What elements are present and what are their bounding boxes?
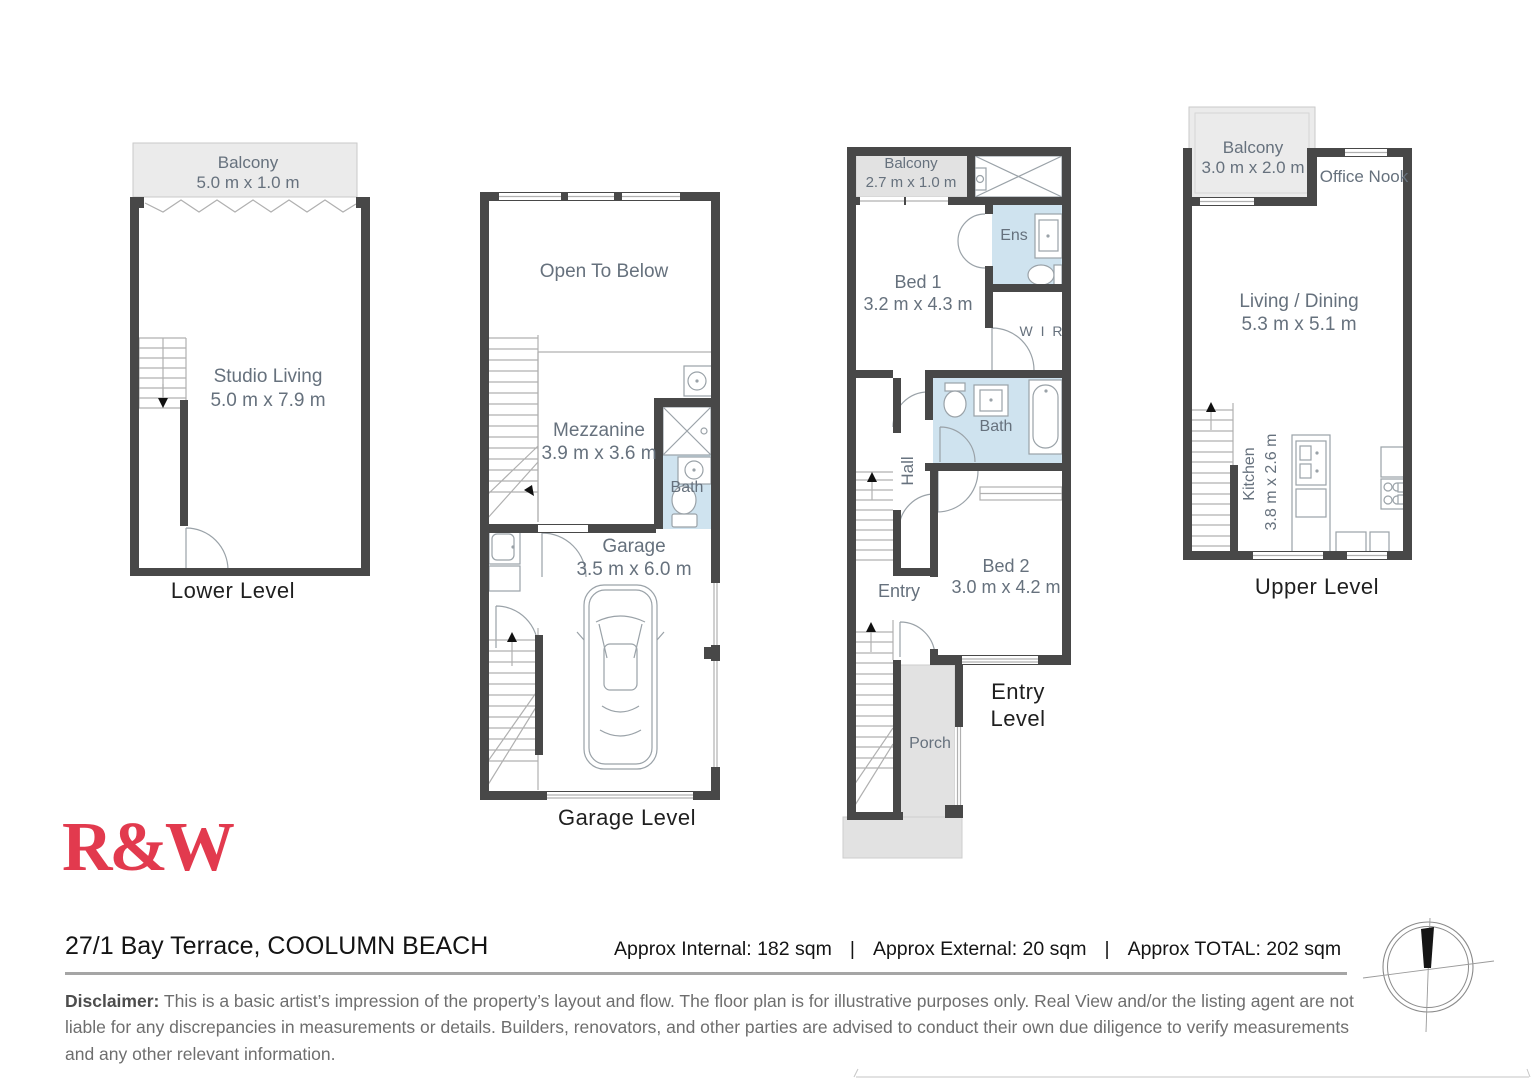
- level-label-entry-2: Level: [990, 706, 1045, 731]
- floorplan-drawing: Balcony 5.0 m x 1.0 m Studio Living 5.0 …: [0, 0, 1534, 1085]
- stairs-down-arrow: [158, 398, 168, 408]
- skylight-box: [975, 156, 1062, 197]
- door-arc: [937, 471, 978, 512]
- stairs-up-arrow: [1206, 402, 1216, 412]
- room-label-office-nook: Office Nook: [1320, 167, 1409, 186]
- garage-lower-stairs: [486, 628, 538, 790]
- level-label-lower: Lower Level: [171, 578, 295, 603]
- level-label-upper: Upper Level: [1255, 574, 1379, 599]
- room-label-ens: Ens: [1000, 227, 1028, 244]
- separator: |: [1104, 938, 1109, 961]
- floorplan-document: Balcony 5.0 m x 1.0 m Studio Living 5.0 …: [0, 0, 1534, 1085]
- separator: |: [850, 938, 855, 961]
- area-summary: Approx Internal: 182 sqm | Approx Extern…: [614, 938, 1350, 961]
- plan-entry-level: Balcony 2.7 m x 1.0 m Bed 1 3.2 m x 4.3 …: [843, 147, 1071, 858]
- disclaimer-label: Disclaimer:: [65, 991, 159, 1011]
- room-label-entry-balcony: Balcony: [884, 155, 938, 172]
- bed2-robe: [980, 487, 1062, 500]
- level-label-garage: Garage Level: [558, 805, 696, 830]
- door-arc: [899, 494, 935, 530]
- zigzag-edge: [145, 200, 356, 212]
- kitchen-appliances: [1336, 447, 1408, 552]
- entry-long-stairs: [852, 620, 893, 812]
- kitchen-island: [1292, 435, 1330, 553]
- door-arc: [496, 606, 538, 648]
- divider-rule: [65, 972, 1347, 975]
- room-label-garage-bath: Bath: [671, 479, 704, 496]
- brand-logo: R&W: [62, 808, 232, 888]
- room-label-mezzanine: Mezzanine: [553, 420, 645, 441]
- room-dims-studio-living: 5.0 m x 7.9 m: [210, 390, 325, 411]
- room-dims-entry-balcony: 2.7 m x 1.0 m: [866, 174, 957, 191]
- room-label-wir: W I R: [1020, 323, 1065, 339]
- plan-garage-level: Open To Below Mezzanine 3.9 m x 3.6 m Ba…: [480, 192, 720, 830]
- north-needle: [1421, 927, 1434, 968]
- stairs-up-arrow: [507, 632, 517, 642]
- room-label-hall: Hall: [898, 456, 917, 485]
- dimension-line: [854, 1069, 1530, 1077]
- entry-mid-stairs: [852, 472, 893, 560]
- upper-stairs: [1190, 403, 1233, 552]
- disclaimer-text: Disclaimer: This is a basic artist’s imp…: [65, 988, 1357, 1067]
- room-label-open-to-below: Open To Below: [540, 261, 669, 282]
- approx-internal: Approx Internal: 182 sqm: [614, 938, 832, 961]
- car: [577, 585, 664, 769]
- mezzanine-sink: [684, 366, 712, 396]
- door-arc: [186, 528, 228, 570]
- room-label-garage: Garage: [602, 536, 665, 557]
- room-dims-bed2: 3.0 m x 4.2 m: [951, 577, 1060, 597]
- room-label-bed2: Bed 2: [982, 556, 1029, 576]
- level-label-entry-1: Entry: [991, 679, 1045, 704]
- double-door-arcs: [958, 214, 985, 268]
- room-dims-garage: 3.5 m x 6.0 m: [576, 559, 691, 580]
- approx-total: Approx TOTAL: 202 sqm: [1128, 938, 1342, 961]
- room-dims-lower-balcony: 5.0 m x 1.0 m: [197, 173, 300, 192]
- room-label-bath: Bath: [980, 418, 1013, 435]
- plan-lower-level: Balcony 5.0 m x 1.0 m Studio Living 5.0 …: [130, 143, 370, 603]
- room-label-kitchen: Kitchen: [1241, 447, 1258, 500]
- room-label-upper-balcony: Balcony: [1223, 138, 1284, 157]
- door-arc: [900, 622, 935, 657]
- porch-area-lower: [843, 817, 962, 858]
- room-label-studio-living: Studio Living: [214, 366, 323, 387]
- room-dims-living-dining: 5.3 m x 5.1 m: [1241, 314, 1356, 335]
- room-label-entry: Entry: [878, 581, 920, 601]
- stairs-up-arrow: [867, 472, 877, 482]
- garage-shower: [663, 407, 711, 455]
- compass-icon: [1363, 918, 1494, 1032]
- room-label-living-dining: Living / Dining: [1239, 291, 1358, 312]
- lower-stairs: [139, 338, 186, 408]
- room-dims-bed1: 3.2 m x 4.3 m: [863, 294, 972, 314]
- room-label-porch: Porch: [909, 735, 951, 752]
- room-dims-kitchen: 3.8 m x 2.6 m: [1263, 434, 1280, 531]
- stairs-up-arrow: [866, 622, 876, 632]
- room-dims-mezzanine: 3.9 m x 3.6 m: [541, 443, 656, 464]
- stairs-arrow: [524, 485, 534, 496]
- property-address: 27/1 Bay Terrace, COOLUMN BEACH: [65, 932, 488, 961]
- garage-upper-stairs: [486, 335, 538, 522]
- laundry-tub: [489, 531, 520, 591]
- room-dims-upper-balcony: 3.0 m x 2.0 m: [1202, 158, 1305, 177]
- room-label-lower-balcony: Balcony: [218, 153, 279, 172]
- plan-upper-level: Balcony 3.0 m x 2.0 m Office Nook Living…: [1183, 107, 1412, 599]
- room-label-bed1: Bed 1: [894, 272, 941, 292]
- approx-external: Approx External: 20 sqm: [873, 938, 1087, 961]
